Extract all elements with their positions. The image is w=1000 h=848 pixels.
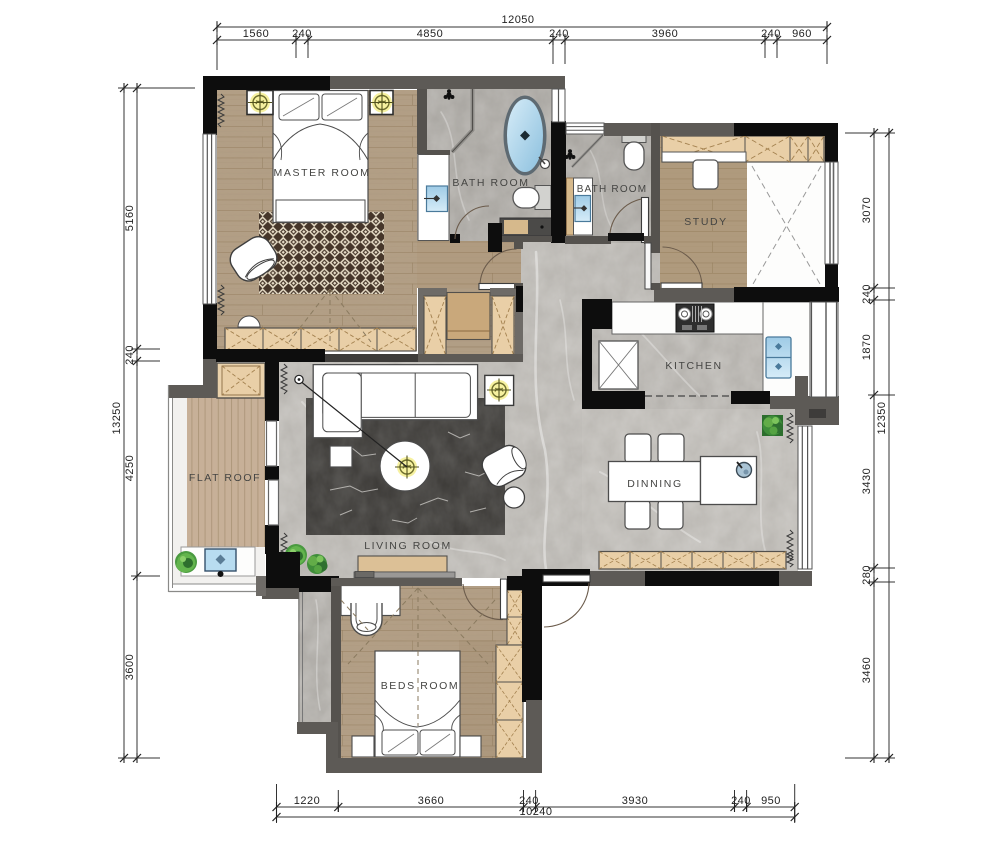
svg-text:5160: 5160 xyxy=(124,205,136,231)
svg-text:3960: 3960 xyxy=(652,28,678,40)
svg-text:240: 240 xyxy=(731,795,751,807)
svg-text:12350: 12350 xyxy=(876,401,888,434)
svg-text:BATH ROOM: BATH ROOM xyxy=(452,177,529,189)
svg-text:BEDS ROOM: BEDS ROOM xyxy=(381,680,460,692)
svg-text:MASTER ROOM: MASTER ROOM xyxy=(274,167,371,179)
svg-text:3660: 3660 xyxy=(418,795,444,807)
svg-text:1870: 1870 xyxy=(861,334,873,360)
svg-text:960: 960 xyxy=(792,28,812,40)
svg-text:240: 240 xyxy=(549,28,569,40)
svg-text:4250: 4250 xyxy=(124,455,136,481)
svg-text:3460: 3460 xyxy=(861,657,873,683)
svg-text:1560: 1560 xyxy=(243,28,269,40)
svg-text:280: 280 xyxy=(861,565,873,585)
svg-text:240: 240 xyxy=(861,284,873,304)
svg-text:3430: 3430 xyxy=(861,468,873,494)
svg-text:DINNING: DINNING xyxy=(627,478,683,490)
svg-text:3070: 3070 xyxy=(861,197,873,223)
svg-text:FLAT ROOF: FLAT ROOF xyxy=(189,472,261,484)
svg-text:240: 240 xyxy=(124,345,136,365)
svg-text:10240: 10240 xyxy=(519,806,552,818)
svg-text:240: 240 xyxy=(761,28,781,40)
svg-text:4850: 4850 xyxy=(417,28,443,40)
svg-text:1220: 1220 xyxy=(294,795,320,807)
svg-text:3930: 3930 xyxy=(622,795,648,807)
svg-text:12050: 12050 xyxy=(501,14,534,26)
svg-text:LIVING ROOM: LIVING ROOM xyxy=(364,540,452,552)
svg-text:950: 950 xyxy=(761,795,781,807)
svg-text:240: 240 xyxy=(292,28,312,40)
svg-text:KITCHEN: KITCHEN xyxy=(665,360,722,372)
svg-text:BATH ROOM: BATH ROOM xyxy=(577,184,648,195)
svg-text:13250: 13250 xyxy=(111,401,123,434)
svg-text:3600: 3600 xyxy=(124,654,136,680)
svg-text:STUDY: STUDY xyxy=(684,216,728,228)
